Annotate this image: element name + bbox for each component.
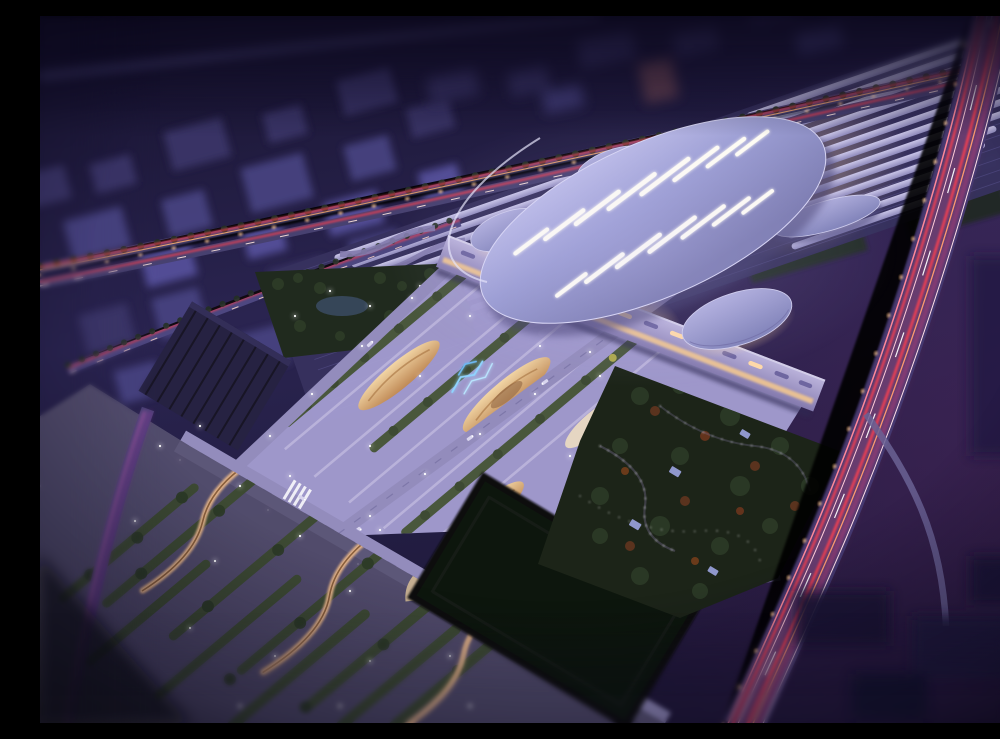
rendering-image: Night-time aerial tilt-shift visualizati… <box>40 16 1000 723</box>
vignette-overlay <box>40 16 1000 723</box>
scene-canvas <box>40 16 1000 723</box>
